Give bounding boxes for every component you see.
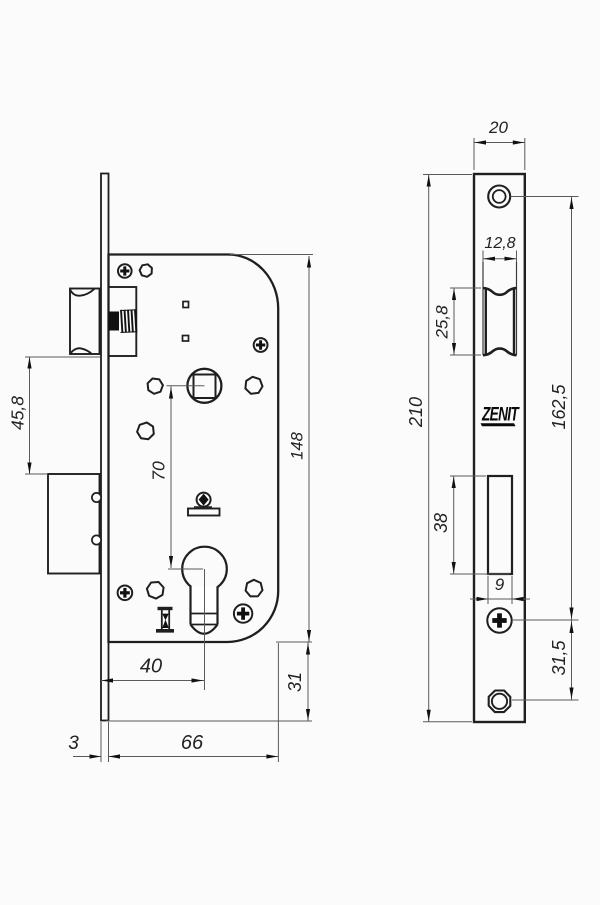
- svg-text:70: 70: [149, 461, 169, 481]
- svg-text:66: 66: [181, 732, 204, 754]
- svg-text:45,8: 45,8: [8, 396, 28, 430]
- svg-text:ZENIT: ZENIT: [481, 403, 520, 425]
- svg-text:210: 210: [406, 397, 426, 428]
- svg-text:9: 9: [495, 575, 505, 594]
- svg-text:12,8: 12,8: [484, 235, 515, 252]
- svg-text:20: 20: [488, 118, 508, 137]
- svg-text:31,5: 31,5: [549, 640, 569, 676]
- svg-text:148: 148: [289, 431, 307, 459]
- svg-text:3: 3: [68, 733, 79, 754]
- svg-text:31: 31: [285, 672, 305, 692]
- svg-text:38: 38: [431, 513, 451, 533]
- svg-text:25,8: 25,8: [433, 305, 452, 340]
- svg-text:40: 40: [140, 656, 162, 678]
- svg-text:162,5: 162,5: [549, 383, 569, 429]
